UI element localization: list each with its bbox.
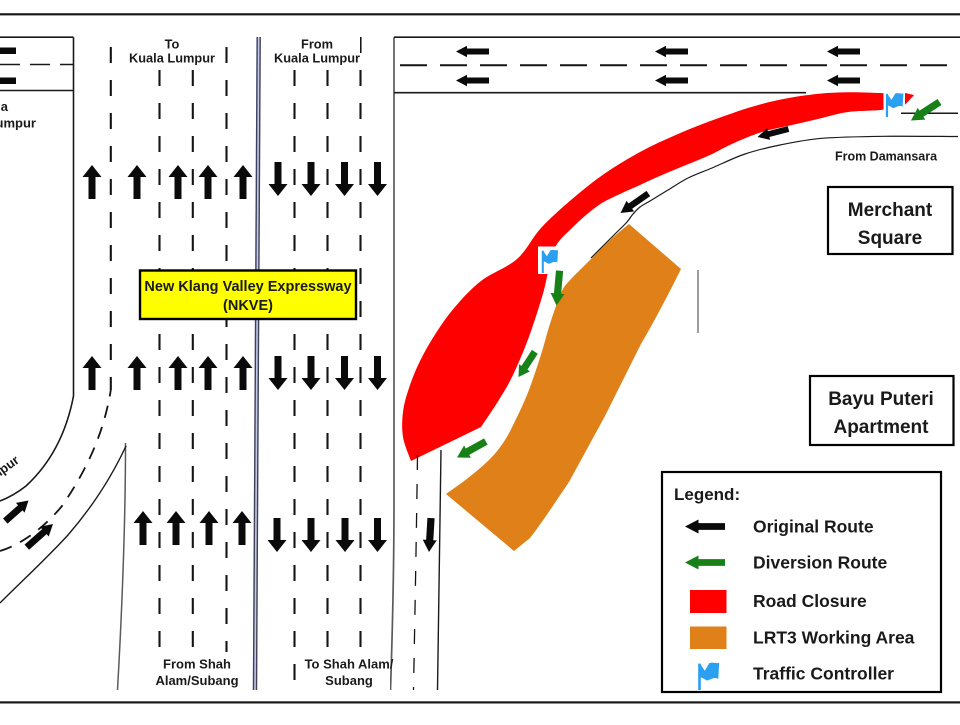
svg-text:Kuala Lumpur: Kuala Lumpur — [274, 51, 360, 66]
svg-text:Apartment: Apartment — [833, 417, 929, 438]
svg-text:From Shah: From Shah — [163, 657, 231, 672]
svg-text:New Klang Valley Expressway: New Klang Valley Expressway — [144, 279, 351, 295]
svg-text:Subang: Subang — [325, 673, 373, 688]
svg-text:(NKVE): (NKVE) — [223, 298, 273, 314]
svg-text:LRT3 Working Area: LRT3 Working Area — [753, 628, 915, 648]
svg-text:Road Closure: Road Closure — [753, 591, 867, 611]
svg-text:To Kuala: To Kuala — [0, 99, 9, 114]
svg-text:From: From — [301, 37, 333, 52]
svg-text:Legend:: Legend: — [674, 485, 740, 504]
svg-text:Diversion Route: Diversion Route — [753, 553, 887, 573]
svg-text:Square: Square — [858, 228, 922, 249]
svg-text:From Damansara: From Damansara — [835, 150, 938, 164]
svg-text:Merchant: Merchant — [848, 200, 933, 221]
svg-text:Bayu Puteri: Bayu Puteri — [828, 389, 934, 410]
svg-text:To Shah Alam/: To Shah Alam/ — [305, 657, 394, 672]
svg-text:Original Route: Original Route — [753, 517, 874, 537]
svg-text:To: To — [165, 37, 180, 52]
svg-text:Lumpur: Lumpur — [0, 116, 36, 131]
svg-text:Alam/Subang: Alam/Subang — [155, 673, 238, 688]
svg-text:Traffic Controller: Traffic Controller — [753, 664, 894, 684]
svg-text:Kuala Lumpur: Kuala Lumpur — [129, 51, 215, 66]
